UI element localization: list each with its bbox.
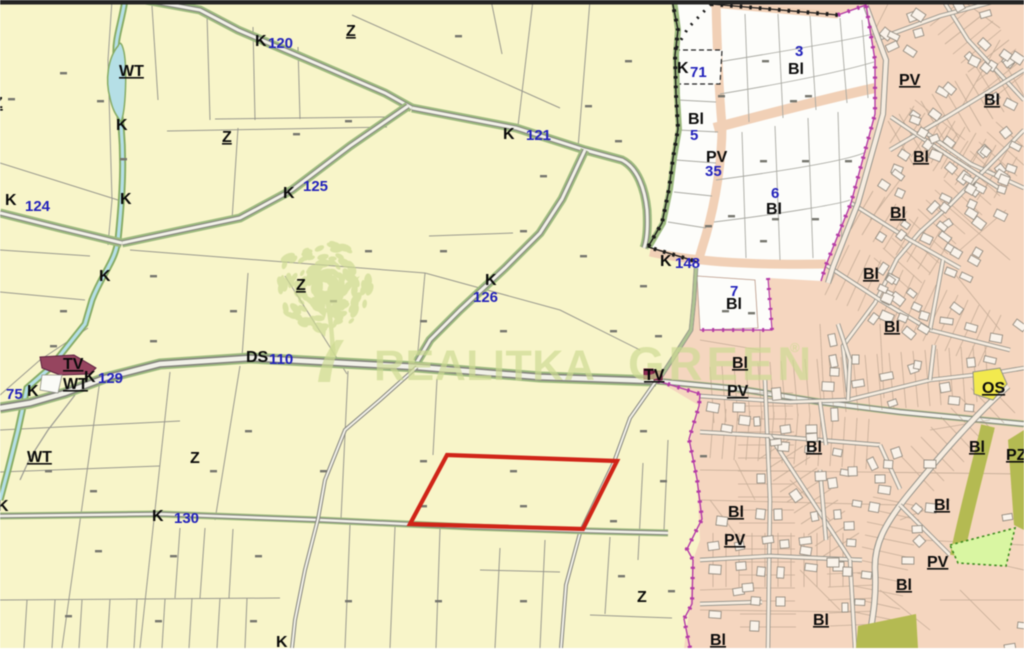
svg-text:K: K bbox=[255, 33, 267, 50]
svg-text:75: 75 bbox=[6, 386, 23, 403]
svg-text:120: 120 bbox=[268, 35, 293, 52]
svg-text:Bl: Bl bbox=[788, 61, 804, 78]
svg-text:K: K bbox=[84, 369, 96, 386]
svg-text:WT: WT bbox=[27, 449, 52, 466]
svg-text:124: 124 bbox=[25, 198, 51, 215]
svg-text:TV: TV bbox=[63, 356, 84, 373]
svg-text:110: 110 bbox=[269, 351, 293, 368]
svg-text:Bl: Bl bbox=[863, 266, 879, 283]
svg-text:K: K bbox=[283, 185, 295, 202]
svg-text:PV: PV bbox=[727, 383, 749, 400]
svg-text:Bl: Bl bbox=[726, 296, 742, 313]
svg-text:129: 129 bbox=[98, 370, 123, 387]
svg-text:WT: WT bbox=[119, 63, 144, 80]
svg-text:35: 35 bbox=[705, 163, 722, 180]
svg-text:Bl: Bl bbox=[884, 319, 900, 336]
svg-text:6: 6 bbox=[771, 185, 779, 202]
svg-text:PV: PV bbox=[899, 72, 921, 89]
svg-text:Bl: Bl bbox=[806, 439, 822, 456]
svg-text:K: K bbox=[503, 126, 515, 143]
svg-text:K: K bbox=[152, 508, 164, 525]
svg-text:Z: Z bbox=[346, 23, 356, 40]
svg-text:Bl: Bl bbox=[984, 92, 1000, 109]
svg-text:TV: TV bbox=[644, 367, 665, 384]
svg-text:71: 71 bbox=[690, 64, 707, 81]
svg-text:Z: Z bbox=[0, 95, 3, 112]
svg-text:Bl: Bl bbox=[934, 497, 950, 514]
svg-text:Z: Z bbox=[296, 277, 306, 294]
svg-text:126: 126 bbox=[473, 289, 498, 306]
svg-text:K: K bbox=[120, 191, 132, 208]
svg-text:K: K bbox=[485, 272, 497, 289]
svg-text:K: K bbox=[27, 383, 39, 400]
svg-text:Z: Z bbox=[222, 129, 232, 146]
svg-text:K: K bbox=[116, 117, 128, 134]
svg-text:Bl: Bl bbox=[688, 111, 704, 128]
svg-text:3: 3 bbox=[795, 43, 803, 60]
svg-text:Bl: Bl bbox=[766, 201, 782, 218]
svg-text:Bl: Bl bbox=[969, 439, 985, 456]
svg-text:Bl: Bl bbox=[728, 504, 744, 521]
svg-text:K: K bbox=[99, 268, 111, 285]
svg-text:K: K bbox=[276, 634, 288, 648]
svg-text:Bl: Bl bbox=[896, 577, 912, 594]
svg-text:Z: Z bbox=[190, 450, 200, 467]
svg-text:125: 125 bbox=[303, 178, 328, 195]
svg-text:Z: Z bbox=[637, 589, 647, 606]
svg-text:Bl: Bl bbox=[813, 612, 829, 629]
svg-text:Bl: Bl bbox=[710, 632, 726, 648]
svg-text:Bl: Bl bbox=[890, 205, 906, 222]
svg-text:PV: PV bbox=[724, 532, 746, 549]
svg-text:PV: PV bbox=[927, 554, 949, 571]
svg-text:K: K bbox=[660, 253, 672, 270]
svg-text:K: K bbox=[677, 60, 689, 77]
svg-text:K: K bbox=[5, 192, 17, 209]
svg-text:®: ® bbox=[790, 340, 800, 355]
svg-text:Bl: Bl bbox=[732, 355, 748, 372]
svg-text:REALITKA: REALITKA bbox=[374, 342, 595, 390]
svg-text:121: 121 bbox=[526, 127, 551, 144]
svg-text:K: K bbox=[0, 498, 9, 515]
svg-text:PZ: PZ bbox=[1006, 447, 1024, 464]
svg-text:Bl: Bl bbox=[913, 149, 929, 166]
svg-text:DS: DS bbox=[246, 349, 269, 366]
svg-text:5: 5 bbox=[690, 127, 698, 144]
svg-text:OS: OS bbox=[982, 380, 1005, 397]
svg-text:148: 148 bbox=[675, 255, 700, 272]
svg-text:130: 130 bbox=[174, 510, 199, 527]
